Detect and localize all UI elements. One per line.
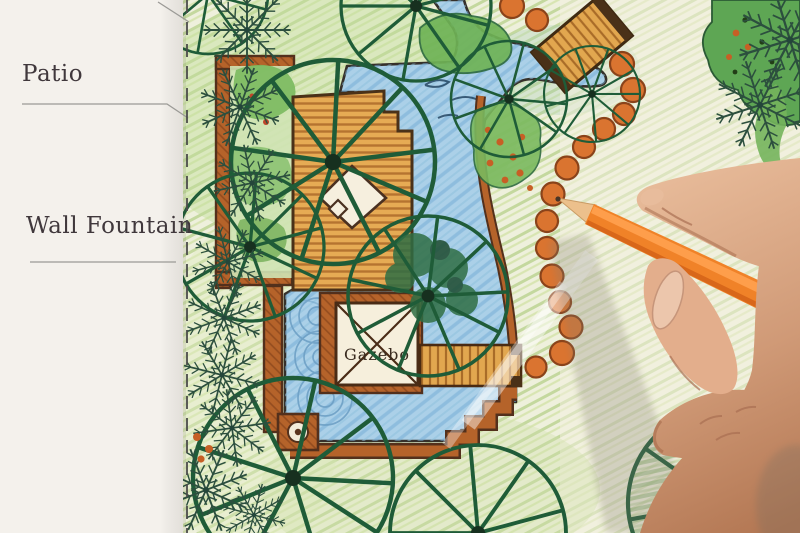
margin-label-wall-fountain: Wall Fountain bbox=[26, 213, 193, 239]
pencil-graphite-tip bbox=[555, 196, 560, 201]
plan-canvas: Gazebo bbox=[0, 0, 800, 533]
wall-corner-post bbox=[278, 414, 318, 450]
paper-margin: Patio Wall Fountain bbox=[0, 0, 193, 533]
margin-label-patio: Patio bbox=[22, 61, 83, 87]
landscape-plan-photo: Gazebo bbox=[0, 0, 800, 533]
